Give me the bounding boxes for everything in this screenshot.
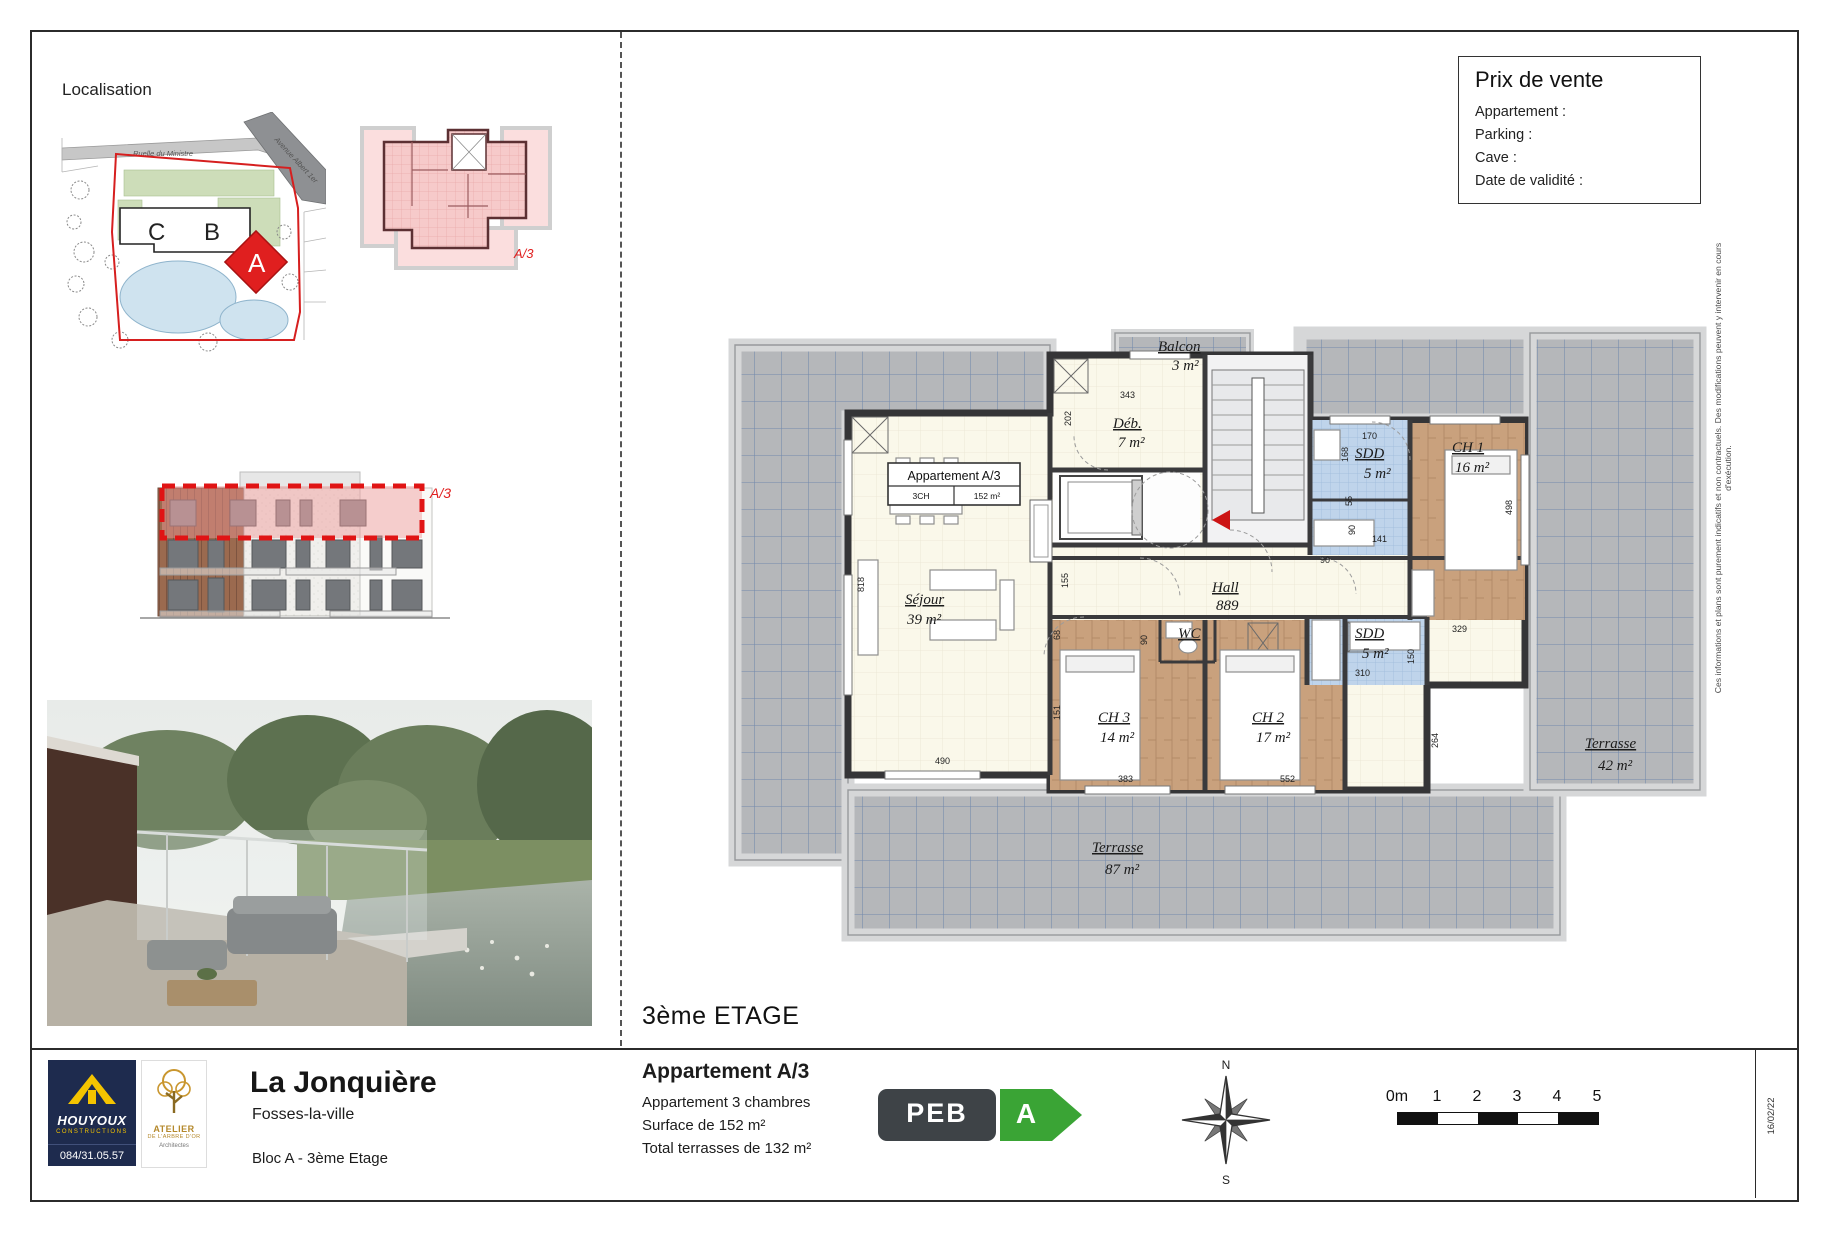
houyoux-logo: HOUYOUX CONSTRUCTIONS 084/31.05.57 [48, 1060, 136, 1166]
deb-area: 7 m² [1118, 435, 1145, 451]
dim-151: 151 [1052, 705, 1062, 720]
apartment-description: Appartement 3 chambres [642, 1094, 810, 1111]
elevation-unit-label: A/3 [429, 485, 451, 501]
balcon-area: 3 m² [1171, 358, 1199, 374]
scale-label-5: 5 [1582, 1088, 1612, 1106]
plan-sheet: Localisation Prix de vente Appartement :… [0, 0, 1830, 1240]
building-c-label: C [148, 219, 165, 246]
terrasse-right-area: 42 m² [1598, 758, 1633, 774]
dim-90a: 90 [1347, 525, 1357, 535]
price-box: Prix de vente Appartement : Parking : Ca… [1458, 56, 1701, 204]
elevation-unit-highlight [162, 486, 422, 538]
houyoux-name: HOUYOUX [48, 1113, 136, 1128]
peb-label: PEB [878, 1098, 996, 1129]
dim-343: 343 [1120, 390, 1135, 400]
unit-box-area: 152 m² [974, 491, 1001, 501]
houyoux-crane-icon [62, 1068, 122, 1108]
key-plan-unit-label: A/3 [513, 246, 534, 261]
dim-818: 818 [856, 577, 866, 592]
apartment-surface: Surface de 152 m² [642, 1117, 765, 1134]
dim-498: 498 [1504, 500, 1514, 515]
compass-rose: N S [1178, 1058, 1274, 1188]
floor-plan: Appartement A/3 3CH 152 m² Séjour 39 m² … [700, 320, 1710, 998]
sdd2-area: 5 m² [1362, 646, 1389, 662]
terrace-photo [47, 700, 592, 1026]
dim-329: 329 [1452, 624, 1467, 634]
sejour-label: Séjour [905, 592, 944, 608]
dim-383: 383 [1118, 774, 1133, 784]
sdd1-label: SDD [1355, 446, 1384, 462]
wc-label: WC [1178, 626, 1201, 642]
date-column-divider [1755, 1048, 1756, 1198]
terrasse-right-label: Terrasse [1585, 736, 1636, 752]
atelier-role: Architectes [142, 1143, 206, 1149]
dim-90c: 90 [1139, 635, 1149, 645]
localisation-heading: Localisation [62, 80, 152, 100]
dim-141: 141 [1372, 534, 1387, 544]
unit-box-rooms: 3CH [912, 491, 929, 501]
unit-box-title: Appartement A/3 [907, 469, 1000, 483]
price-line-apartment: Appartement : [1475, 101, 1684, 124]
panel-divider [620, 32, 622, 1046]
sheet-date: 16/02/22 [1766, 1076, 1778, 1156]
ch2-label: CH 2 [1252, 710, 1285, 726]
balcon-label: Balcon [1158, 339, 1201, 355]
titleblock-divider [30, 1048, 1797, 1050]
project-title: La Jonquière [250, 1066, 437, 1100]
key-plan: A/3 [356, 110, 556, 275]
scale-labels: 0m 1 2 3 4 5 [1382, 1088, 1612, 1108]
terrasse-bottom-label: Terrasse [1092, 840, 1143, 856]
site-map: Ruelle du Ministre Avenue Albert 1er C B… [58, 112, 326, 352]
deb-label: Déb. [1112, 416, 1142, 432]
legal-disclaimer: Ces informations et plans sont purement … [1713, 239, 1729, 697]
peb-badge: PEB A [878, 1089, 1088, 1141]
dim-202: 202 [1063, 411, 1073, 426]
sdd1-area: 5 m² [1364, 466, 1391, 482]
atelier-logo: ATELIER DE L'ARBRE D'OR Architectes [141, 1060, 207, 1168]
houyoux-sub: CONSTRUCTIONS [48, 1129, 136, 1135]
dim-490: 490 [935, 756, 950, 766]
terrasse-bottom-area: 87 m² [1105, 862, 1140, 878]
apartment-title: Appartement A/3 [642, 1060, 809, 1084]
ch3-label: CH 3 [1098, 710, 1130, 726]
compass-star-icon [1178, 1072, 1274, 1168]
building-b-label: B [204, 219, 220, 246]
dim-264: 264 [1430, 733, 1440, 748]
dim-552: 552 [1280, 774, 1295, 784]
dim-90b: 90 [1320, 555, 1330, 565]
price-line-validity: Date de validité : [1475, 170, 1684, 193]
peb-grade-letter: A [1000, 1098, 1052, 1130]
price-line-cave: Cave : [1475, 147, 1684, 170]
scale-bar: 0m 1 2 3 4 5 [1382, 1088, 1612, 1125]
sejour-area: 39 m² [906, 612, 942, 628]
project-block: Bloc A - 3ème Etage [252, 1150, 388, 1167]
compass-south-label: S [1178, 1173, 1274, 1187]
scale-label-4: 4 [1542, 1088, 1572, 1106]
sdd2-label: SDD [1355, 626, 1384, 642]
elevation-drawing: A/3 [100, 428, 468, 633]
dim-170: 170 [1362, 431, 1377, 441]
dim-155: 155 [1060, 573, 1070, 588]
apartment-terraces: Total terrasses de 132 m² [642, 1140, 811, 1157]
ch1-label: CH 1 [1452, 440, 1484, 456]
scale-bar-graphic [1397, 1112, 1599, 1125]
ch3-area: 14 m² [1100, 730, 1135, 746]
scale-label-1: 1 [1422, 1088, 1452, 1106]
price-box-title: Prix de vente [1475, 67, 1684, 93]
peb-arrow-icon [1052, 1089, 1082, 1141]
hall-area: 889 [1216, 598, 1239, 614]
dim-150: 150 [1406, 649, 1416, 664]
project-city: Fosses-la-ville [252, 1106, 354, 1124]
atelier-tree-icon [154, 1065, 194, 1117]
dim-68: 68 [1052, 630, 1062, 640]
dim-310: 310 [1355, 668, 1370, 678]
scale-label-0: 0m [1382, 1088, 1412, 1106]
ch2-area: 17 m² [1256, 730, 1291, 746]
scale-label-2: 2 [1462, 1088, 1492, 1106]
floor-stage-label: 3ème ETAGE [642, 1002, 799, 1031]
atelier-name: ATELIER [142, 1124, 206, 1134]
compass-north-label: N [1178, 1058, 1274, 1072]
atelier-sub: DE L'ARBRE D'OR [142, 1134, 206, 1140]
price-line-parking: Parking : [1475, 124, 1684, 147]
scale-label-3: 3 [1502, 1088, 1532, 1106]
dim-168: 168 [1340, 447, 1350, 462]
unit-info-box: Appartement A/3 3CH 152 m² [888, 463, 1020, 505]
building-a-label: A [248, 248, 266, 278]
dim-55: 55 [1344, 496, 1354, 506]
ch1-area: 16 m² [1455, 460, 1490, 476]
hall-label: Hall [1211, 580, 1239, 596]
houyoux-phone: 084/31.05.57 [48, 1144, 136, 1162]
